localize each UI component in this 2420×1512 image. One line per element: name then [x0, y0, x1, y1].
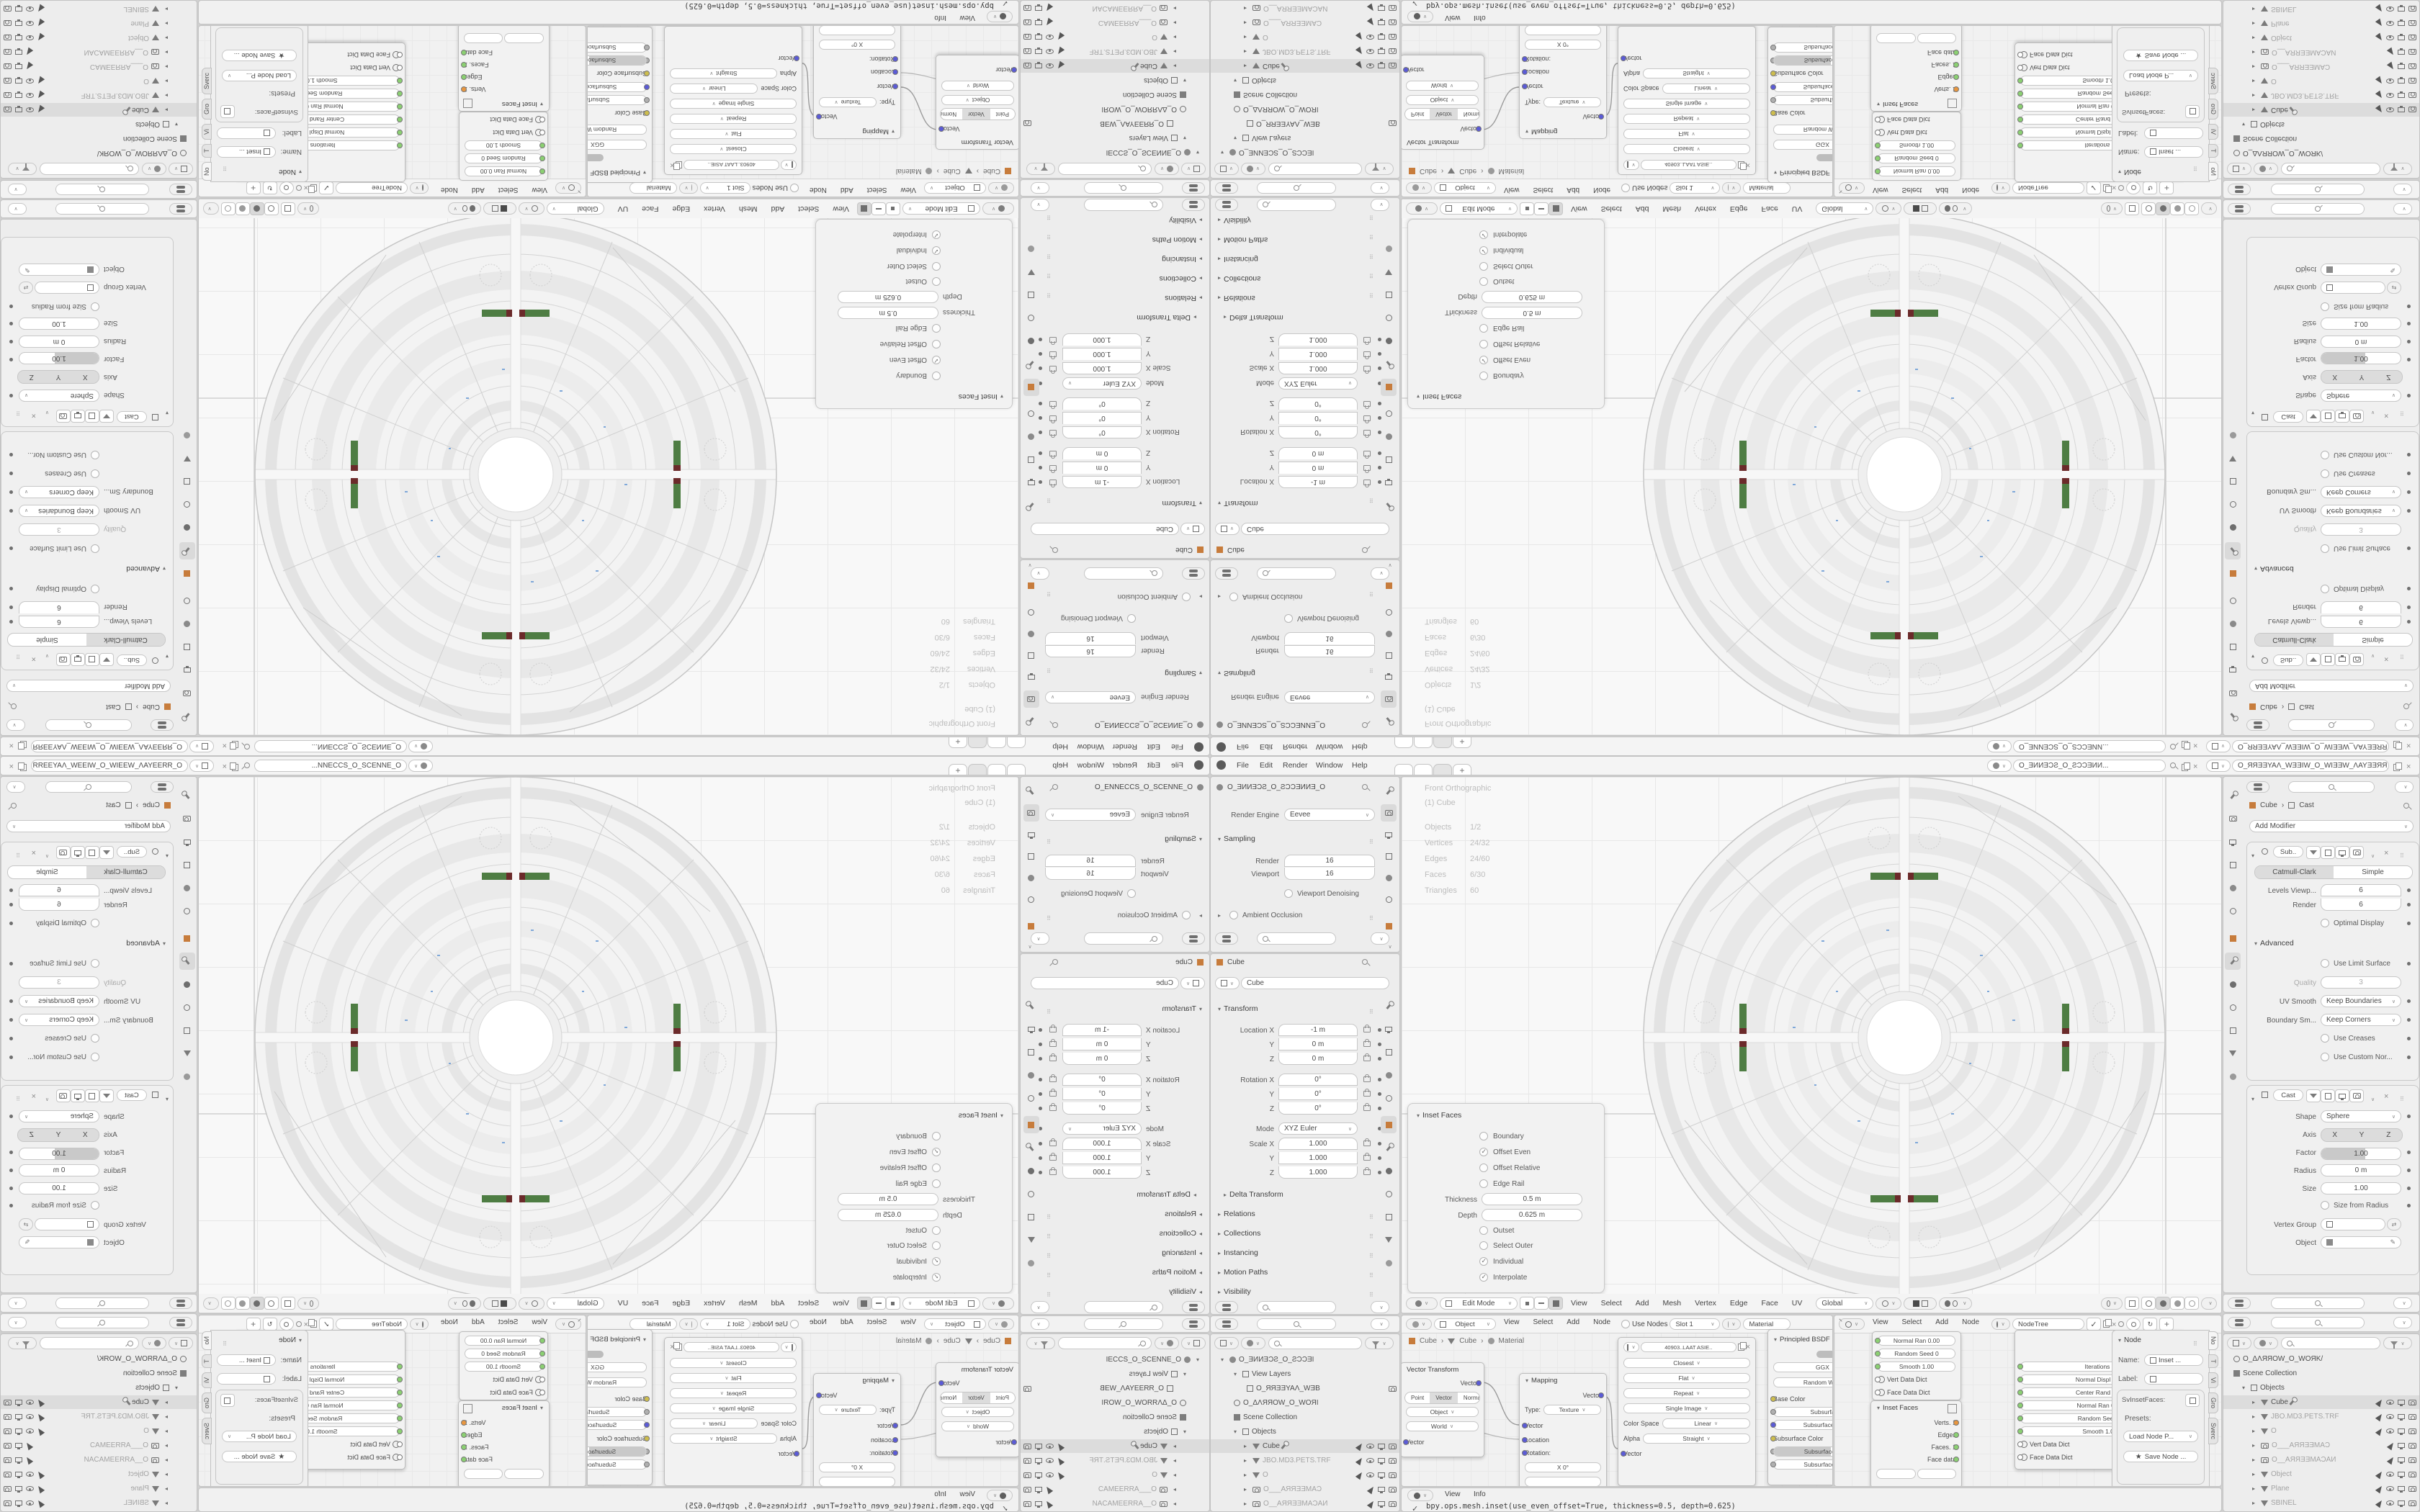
camera-icon[interactable] — [1023, 121, 1031, 127]
section-relations[interactable]: Relations — [1165, 294, 1202, 302]
vector-output-socket[interactable] — [1598, 1392, 1604, 1398]
location-x-field[interactable]: -1 m — [1062, 476, 1142, 488]
mapping-node[interactable]: Mapping Vector Type:Texture Vector Locat… — [1519, 25, 1607, 139]
editor-type-dropdown[interactable] — [987, 1490, 1013, 1501]
snap-toggle[interactable] — [483, 203, 516, 215]
search-input[interactable] — [1257, 567, 1336, 580]
solid-shading-button[interactable] — [2156, 202, 2170, 215]
blender-logo-icon[interactable] — [1192, 740, 1204, 752]
workspace-tab[interactable] — [1414, 737, 1433, 748]
close-icon[interactable] — [223, 760, 227, 773]
mapping-node[interactable]: Mapping Vector Type:Texture Vector Locat… — [813, 1373, 901, 1487]
socket[interactable] — [2017, 1377, 2023, 1382]
close-icon[interactable] — [9, 739, 14, 752]
tab-physics[interactable] — [2225, 999, 2241, 1016]
options-dropdown[interactable] — [1031, 1318, 1049, 1330]
outliner-row-scene-collection[interactable]: Scene Collection — [2223, 1367, 2419, 1380]
socket[interactable] — [2017, 52, 2023, 58]
cast-object-field[interactable]: ✎ — [19, 1236, 99, 1248]
outliner-search-input[interactable] — [40, 163, 139, 175]
edge-rail-checkbox[interactable] — [1479, 1179, 1488, 1188]
levels-viewport-field[interactable]: 6 — [2321, 884, 2401, 896]
wireframe-shading-button[interactable] — [2141, 1297, 2156, 1310]
tab-output[interactable] — [179, 662, 195, 679]
add-modifier-dropdown[interactable]: Add Modifier — [6, 680, 171, 692]
menu-info[interactable]: Info — [928, 14, 952, 22]
random-seed-field[interactable]: Random Seed 0 — [1878, 153, 1955, 163]
viewport-toggle[interactable] — [2335, 1089, 2349, 1102]
lock-icon[interactable] — [1049, 1155, 1057, 1161]
vector-input-socket[interactable] — [1403, 1439, 1409, 1445]
save-node-preset-button[interactable]: Save Node ... — [2123, 1451, 2198, 1462]
editor-type-dropdown[interactable] — [987, 11, 1013, 22]
realtime-toggle[interactable] — [2321, 653, 2335, 666]
modifier-name-field[interactable]: Sub.. — [2273, 654, 2303, 666]
tab-view-layer[interactable] — [1381, 1043, 1397, 1061]
outliner-row-camera[interactable]: O___AЯЯƎƎMAƆ — [1211, 1482, 1399, 1496]
expand-caret[interactable] — [2251, 651, 2257, 664]
boundary-smooth-dropdown[interactable]: Keep Corners — [19, 1014, 99, 1026]
render-toggle[interactable] — [2349, 653, 2364, 666]
socket[interactable] — [1875, 168, 1881, 174]
object-id-icon-dropdown[interactable] — [1180, 523, 1205, 535]
extras-dropdown[interactable] — [45, 651, 52, 664]
inset-faces-node[interactable]: Inset Faces Verts. 1 Edges Faces. 1 Face… — [458, 25, 550, 112]
faces-output-socket[interactable] — [461, 62, 467, 68]
tab-world[interactable] — [1023, 1089, 1039, 1107]
search-input[interactable] — [1084, 932, 1163, 945]
axis-y-button[interactable]: Y — [2348, 1129, 2375, 1141]
rotation-z-field[interactable]: 0° — [1278, 397, 1358, 410]
vector-input-socket[interactable] — [1522, 1423, 1528, 1428]
ambient-occlusion-section[interactable] — [1196, 593, 1202, 601]
socket[interactable] — [1875, 117, 1881, 122]
outliner-row-cube[interactable]: Cube — [2223, 103, 2419, 117]
menu-select[interactable]: Select — [1896, 1318, 1928, 1330]
subsurface-color-socket[interactable] — [1770, 71, 1776, 76]
normal-ran-field[interactable]: Normal Ran 0.00 — [1878, 1336, 1955, 1346]
depth-field[interactable]: 0.625 m — [838, 1209, 938, 1221]
tab-physics[interactable] — [1023, 310, 1039, 327]
tab-constraints[interactable] — [1381, 287, 1397, 304]
tab-render[interactable] — [1381, 804, 1397, 822]
hidden-sockets-pill[interactable] — [587, 1351, 604, 1358]
viewport-toggle[interactable] — [2335, 653, 2349, 666]
menu-view[interactable]: View — [1439, 14, 1466, 22]
load-node-preset-button[interactable]: Load Node P... — [2123, 1431, 2198, 1442]
lock-icon[interactable] — [1049, 1041, 1057, 1047]
outliner-row-camera[interactable]: O__AЯЯƎƎMAƆAИ — [2223, 45, 2419, 59]
tab-view-layer[interactable] — [179, 639, 195, 656]
tab-render[interactable] — [2225, 810, 2241, 827]
tab-sverchok[interactable]: Sverc — [2208, 68, 2218, 94]
scale-z-field[interactable]: 1.000 — [1062, 1166, 1142, 1179]
outliner-scene-dropdown[interactable] — [2254, 163, 2278, 175]
lock-icon[interactable] — [1363, 430, 1371, 436]
menu-edit[interactable]: Edit — [1254, 761, 1278, 770]
menu-select[interactable]: Select — [1595, 204, 1628, 213]
use-creases-checkbox[interactable] — [2321, 1034, 2329, 1043]
tab-object[interactable] — [1381, 1116, 1397, 1133]
render-disable-icon[interactable] — [1389, 1444, 1397, 1449]
shading-options-dropdown[interactable] — [2201, 1297, 2217, 1310]
options-dropdown[interactable] — [6, 781, 25, 793]
modifier-name-field[interactable]: Cast — [117, 411, 147, 423]
workspace-tab-active[interactable] — [968, 737, 987, 748]
sampling-section[interactable]: Sampling — [1218, 834, 1255, 843]
inset-faces-panel-title[interactable]: Inset Faces — [959, 1111, 1003, 1120]
vector-input-socket[interactable] — [794, 1451, 799, 1457]
vector-transform-node[interactable]: Vector Transform Vector PointVectorNorma… — [1401, 1362, 1484, 1457]
outliner-row-sbinel[interactable]: SBINEL — [2223, 2, 2419, 16]
breadcrumb-object[interactable]: Cube — [2260, 703, 2277, 711]
workspace-tab[interactable] — [1007, 737, 1026, 748]
boundary-smooth-dropdown[interactable]: Keep Corners — [2321, 1014, 2401, 1026]
image-browse-dropdown[interactable] — [781, 1342, 797, 1352]
outliner-row-objects[interactable]: Objects — [2223, 1381, 2419, 1395]
edge-select-button[interactable] — [871, 202, 886, 215]
sverchok-node-editor[interactable]: View Select Add Node NodeTree ↻ Normal R… — [198, 25, 586, 197]
menu-add[interactable]: Add — [766, 1299, 791, 1308]
search-input[interactable] — [1084, 199, 1163, 211]
node-tree-name-field[interactable]: NodeTree — [336, 182, 408, 194]
outliner-row-object[interactable]: O — [1, 1424, 197, 1438]
size-field[interactable]: 1.00 — [19, 318, 99, 330]
boundary-smooth-dropdown[interactable]: Keep Corners — [19, 486, 99, 498]
menu-select[interactable]: Select — [493, 1318, 524, 1330]
menu-add[interactable]: Add — [1630, 204, 1655, 213]
edit-mode-toggle[interactable] — [99, 653, 114, 666]
outliner-row-camera[interactable]: O__AЯЯƎƎMAƆAИ — [2223, 1453, 2419, 1467]
tab-object-data[interactable] — [179, 1045, 195, 1062]
uv-smooth-dropdown[interactable]: Keep Boundaries — [19, 505, 99, 517]
outliner-filter-dropdown[interactable] — [2383, 1337, 2412, 1349]
close-icon[interactable] — [2112, 1318, 2116, 1331]
outliner-scene-dropdown[interactable] — [142, 1337, 166, 1349]
tab-tool[interactable] — [179, 787, 195, 804]
samples-render-field[interactable]: 16 — [1284, 855, 1375, 867]
size-from-radius-checkbox[interactable] — [2321, 1201, 2329, 1210]
menu-uv[interactable]: UV — [1786, 1299, 1809, 1308]
outliner-row-object[interactable]: O — [1211, 1468, 1399, 1482]
vertex-select-button[interactable] — [1520, 202, 1534, 215]
outliner-row-world[interactable]: O_ΔΛЯЯOW_O_WOЯK/ — [2223, 146, 2419, 160]
breadcrumb-modifier[interactable]: Cast — [2299, 801, 2314, 809]
viewport-denoising-checkbox[interactable] — [1127, 614, 1136, 623]
mode-dropdown[interactable]: Edit Mode — [902, 203, 980, 215]
options-dropdown[interactable] — [2393, 1297, 2412, 1309]
node-label-field[interactable] — [217, 1373, 276, 1385]
socket[interactable] — [397, 78, 403, 84]
select-outer-checkbox[interactable] — [1479, 1241, 1488, 1250]
outliner-row-object[interactable]: JBO.MD3.PETS.TRF — [1, 1410, 197, 1423]
rotation-mode-dropdown[interactable]: XYZ Euler — [1278, 1122, 1358, 1135]
tab-material[interactable] — [2225, 1068, 2241, 1085]
viewport-3d[interactable]: Front Orthographic (1) Cube Objects1/2 V… — [198, 198, 1019, 736]
socket[interactable] — [2017, 1441, 2023, 1447]
menu-edit[interactable]: Edit — [1254, 742, 1278, 751]
workspace-tab[interactable] — [987, 764, 1006, 775]
modifier-name-field[interactable]: Cast — [117, 1089, 147, 1101]
vector-output-socket[interactable] — [816, 114, 822, 120]
animate-dot[interactable] — [1039, 1107, 1042, 1110]
select-cursor-icon[interactable] — [36, 1398, 45, 1407]
load-node-preset-button[interactable]: Load Node P... — [222, 70, 297, 81]
simple-button[interactable]: Simple — [8, 866, 86, 878]
editor-type-dropdown[interactable] — [555, 1318, 581, 1330]
socket[interactable] — [2017, 143, 2023, 148]
subsurface-color-socket[interactable] — [644, 1436, 650, 1441]
axis-z-button[interactable]: Z — [2375, 1129, 2402, 1141]
menu-edit[interactable]: Edit — [1142, 761, 1166, 770]
section-instancing[interactable]: Instancing — [1218, 255, 1258, 264]
object-name-field[interactable]: Cube — [1031, 977, 1179, 989]
object-crumb-name[interactable]: Cube — [1227, 958, 1245, 966]
tab-object[interactable] — [1023, 379, 1039, 396]
tab-object[interactable] — [2225, 565, 2241, 582]
vector-input-socket[interactable] — [1621, 55, 1626, 61]
menu-edge[interactable]: Edge — [1724, 1299, 1754, 1308]
refresh-button[interactable]: ↻ — [2143, 1318, 2157, 1331]
samples-render-field[interactable]: 16 — [1045, 855, 1136, 867]
extras-dropdown[interactable] — [2368, 408, 2375, 420]
node-button[interactable] — [1876, 1469, 1916, 1479]
render-toggle[interactable] — [56, 846, 71, 859]
editor-type-dropdown[interactable] — [982, 1297, 1014, 1310]
node-label-field[interactable] — [2144, 127, 2203, 139]
tab-view-layer[interactable] — [179, 856, 195, 873]
tab-scene[interactable] — [2225, 616, 2241, 633]
offset-even-checkbox[interactable] — [1479, 1148, 1488, 1156]
socket[interactable] — [397, 1377, 403, 1382]
lock-icon[interactable] — [1049, 351, 1057, 357]
vertex-group-field[interactable] — [2321, 1218, 2385, 1230]
filter-toggles-button[interactable] — [2228, 1297, 2251, 1309]
tab-more-dropdown[interactable] — [1381, 559, 1397, 575]
face-select-button[interactable] — [857, 1297, 871, 1310]
node-name-field[interactable]: Inset ... — [2144, 1354, 2203, 1366]
solid-shading-button[interactable] — [250, 1297, 264, 1310]
edge-select-button[interactable] — [1534, 202, 1549, 215]
outliner-search-input[interactable] — [1268, 1337, 1362, 1349]
tab-scene[interactable] — [1381, 869, 1397, 886]
tab-output[interactable] — [1023, 669, 1039, 686]
outliner-search-input[interactable] — [1268, 163, 1362, 175]
cast-object-field[interactable]: ✎ — [2321, 264, 2401, 276]
subsurface-ior-field[interactable]: Subsurface IOR — [1773, 55, 1833, 66]
invert-vertex-group-button[interactable]: ⇄ — [2387, 282, 2401, 294]
radius-field[interactable]: 0 m — [2321, 1164, 2401, 1176]
tab-scene[interactable] — [1381, 1066, 1397, 1084]
socket[interactable] — [397, 52, 403, 58]
principled-bsdf-node[interactable]: Principled BSDF GGX Random Walk Base Col… — [1767, 1329, 1833, 1485]
subsurface-field[interactable]: Subsurface — [587, 95, 647, 105]
rotation-y-field[interactable]: 0° — [1062, 412, 1142, 424]
rotation-input-socket[interactable] — [1522, 1450, 1528, 1456]
tab-particles[interactable] — [2225, 519, 2241, 536]
node-name-field[interactable]: Inset ... — [217, 146, 276, 158]
edges-output-socket[interactable] — [1953, 1432, 1959, 1438]
vector-output-socket[interactable] — [1476, 1380, 1482, 1386]
smooth-field[interactable]: Smooth 1.00 — [1878, 140, 1955, 150]
rotation-input-socket[interactable] — [892, 1450, 898, 1456]
copy-icon[interactable] — [2182, 762, 2188, 775]
edge-rail-checkbox[interactable] — [932, 324, 941, 333]
view-layer-type-dropdown[interactable] — [2206, 740, 2231, 752]
base-color-socket[interactable] — [1770, 110, 1776, 116]
ambient-occlusion-checkbox[interactable] — [1182, 911, 1191, 919]
scale-y-field[interactable]: 1.000 — [1278, 1152, 1358, 1164]
quality-field[interactable]: 3 — [19, 523, 99, 536]
shading-options-dropdown[interactable] — [2201, 203, 2217, 215]
select-cursor-icon[interactable] — [1355, 1441, 1364, 1451]
outliner-row-sbinel[interactable]: SBINEL — [2223, 1496, 2419, 1510]
snap-toggle[interactable] — [483, 1297, 516, 1310]
animate-dot[interactable] — [1039, 402, 1042, 405]
tab-world[interactable] — [1023, 604, 1039, 621]
transform-section[interactable]: Transform — [1218, 499, 1258, 508]
menu-render[interactable]: Render — [1107, 742, 1143, 751]
filter-toggles-button[interactable] — [1182, 182, 1205, 194]
advanced-section[interactable]: Advanced — [126, 564, 166, 573]
transform-orientation-dropdown[interactable]: Global — [547, 203, 604, 215]
distribution-dropdown[interactable]: GGX — [1773, 140, 1833, 150]
ambient-occlusion-checkbox[interactable] — [1229, 593, 1238, 601]
advanced-section[interactable]: Advanced — [126, 939, 166, 948]
outliner-filter-dropdown[interactable] — [1026, 163, 1055, 175]
catmull-clark-button[interactable]: Catmull-Clark — [86, 866, 165, 878]
copy-icon[interactable] — [2182, 737, 2188, 750]
outliner-row-camera[interactable]: O__AЯЯƎƎMAƆAИ — [1021, 1497, 1209, 1511]
distribution-dropdown[interactable]: GGX — [587, 140, 647, 150]
rotation-y-field[interactable] — [819, 1477, 895, 1487]
extras-dropdown[interactable] — [45, 848, 52, 861]
mode-dropdown[interactable]: Edit Mode — [1440, 203, 1518, 215]
node-tree-type-dropdown[interactable] — [1991, 182, 2010, 194]
socket[interactable] — [397, 1454, 403, 1460]
socket[interactable] — [397, 1428, 403, 1434]
menu-add[interactable]: Add — [766, 204, 791, 213]
outliner-row-camera[interactable]: O___AЯЯƎƎMAƆ — [1, 60, 197, 73]
use-custom-normals-checkbox[interactable] — [2321, 1053, 2329, 1061]
menu-help[interactable]: Help — [1346, 742, 1373, 751]
tab-constraints[interactable] — [179, 473, 195, 490]
tab-object[interactable] — [1381, 917, 1397, 935]
visibility-eye-icon[interactable] — [1046, 1444, 1054, 1449]
verts-output-socket[interactable] — [461, 86, 467, 92]
outliner-row-object[interactable]: JBO.MD3.PETS.TRF — [1211, 1454, 1399, 1467]
menu-window[interactable]: Window — [1072, 761, 1110, 770]
outliner-display-mode-dropdown[interactable] — [1181, 1337, 1206, 1349]
outliner-row-world[interactable]: O_ΔΛЯЯOW_O_WOЯI — [1211, 1396, 1399, 1410]
lock-icon[interactable] — [1049, 366, 1057, 372]
tab-particles[interactable] — [179, 519, 195, 536]
menu-view[interactable]: View — [827, 1299, 855, 1308]
scale-z-field[interactable]: 1.000 — [1278, 1166, 1358, 1179]
tab-material[interactable] — [2225, 427, 2241, 444]
axis-x-button[interactable]: X — [72, 371, 99, 383]
menu-file[interactable]: File — [1165, 761, 1189, 770]
tab-particles[interactable] — [179, 976, 195, 993]
size-from-radius-checkbox[interactable] — [91, 302, 99, 311]
search-input[interactable] — [2288, 719, 2375, 731]
face-data-output-socket[interactable] — [461, 50, 467, 55]
outliner-row-objects[interactable]: Objects — [2223, 117, 2419, 131]
tab-object[interactable] — [1381, 379, 1397, 396]
simple-button[interactable]: Simple — [8, 634, 86, 646]
select-cursor-icon[interactable] — [2375, 105, 2384, 114]
tab-view-layer[interactable] — [1381, 847, 1397, 865]
render-disable-icon[interactable] — [2408, 107, 2416, 113]
offset-relative-checkbox[interactable] — [932, 1164, 941, 1172]
tab-output[interactable] — [1381, 669, 1397, 686]
tab-material[interactable] — [1023, 1254, 1039, 1272]
image-name-field[interactable]: 40903..LAAT ASIE.. — [1641, 1342, 1736, 1352]
outliner-row-cube[interactable]: Cube — [1, 1395, 197, 1409]
menu-window[interactable]: Window — [1310, 742, 1348, 751]
search-input[interactable] — [45, 781, 132, 793]
advanced-section[interactable]: Advanced — [2254, 564, 2294, 573]
menu-face[interactable]: Face — [636, 1299, 664, 1308]
tab-constraints[interactable] — [1023, 1208, 1039, 1225]
outliner-row-object[interactable]: JBO.MD3.PETS.TRF — [2223, 89, 2419, 102]
search-input[interactable] — [55, 1297, 149, 1309]
tab-tool[interactable] — [1023, 712, 1039, 729]
outliner-row-camera[interactable]: O___AЯЯƎƎMAƆ — [1021, 16, 1209, 30]
tab-node[interactable]: No — [202, 162, 212, 181]
filter-toggles-button[interactable] — [1182, 199, 1205, 211]
socket[interactable] — [397, 130, 403, 135]
section-delta-transform[interactable]: Delta Transform — [1224, 1190, 1283, 1199]
shader-editor[interactable]: Object View Select Add Node Use Nodes Sl… — [1401, 1315, 1833, 1487]
scale-z-field[interactable]: 1.000 — [1062, 333, 1142, 346]
mapping-type-dropdown[interactable]: Texture — [1543, 97, 1601, 107]
tab-view[interactable]: Vi — [2208, 1372, 2218, 1388]
copy-icon[interactable] — [676, 161, 682, 168]
tab-particles[interactable] — [1023, 333, 1039, 350]
radius-field[interactable]: 0 m — [19, 336, 99, 348]
rotation-x-field[interactable]: X 0° — [819, 1462, 895, 1472]
outliner-row-cube[interactable]: Cube — [1211, 59, 1399, 73]
lock-icon[interactable] — [1049, 401, 1057, 407]
menu-uv[interactable]: UV — [612, 1299, 635, 1308]
add-workspace-tab[interactable] — [1453, 764, 1471, 775]
menu-vertex[interactable]: Vertex — [1689, 204, 1722, 213]
menu-window[interactable]: Window — [1072, 742, 1110, 751]
options-dropdown[interactable] — [2393, 1317, 2412, 1328]
viewport-denoising-checkbox[interactable] — [1127, 889, 1136, 898]
scene-name-field[interactable]: O_ƎИИƎƆƧ_O_ƧƆƆƎИИ... — [254, 760, 407, 772]
visibility-eye-icon[interactable] — [26, 1400, 34, 1405]
thickness-field[interactable]: 0.5 m — [838, 307, 938, 319]
outliner-scene-dropdown[interactable] — [1155, 1337, 1179, 1349]
menu-mesh[interactable]: Mesh — [733, 1299, 763, 1308]
expand-caret[interactable] — [2251, 848, 2257, 861]
scale-z-field[interactable]: 1.000 — [1278, 333, 1358, 346]
rotation-z-field[interactable]: 0° — [1062, 397, 1142, 410]
tab-tool[interactable] — [1381, 712, 1397, 729]
rendered-shading-button[interactable] — [221, 202, 236, 215]
vector-transform-node[interactable]: Vector Transform Vector PointVectorNorma… — [936, 1362, 1019, 1457]
use-limit-surface-checkbox[interactable] — [2321, 544, 2329, 553]
samples-viewport-field[interactable]: 16 — [1284, 632, 1375, 644]
viewport-toggle[interactable] — [2335, 410, 2349, 423]
outliner-row-view-layer[interactable]: O_ЯЯƎƎYAΛ_WƎB — [1211, 117, 1399, 130]
convert-to-dropdown[interactable]: World — [941, 81, 1014, 91]
copy-icon[interactable] — [2103, 184, 2110, 192]
rotation-y-field[interactable]: 0° — [1278, 1088, 1358, 1100]
transform-orientation-dropdown[interactable]: Global — [1816, 203, 1873, 215]
